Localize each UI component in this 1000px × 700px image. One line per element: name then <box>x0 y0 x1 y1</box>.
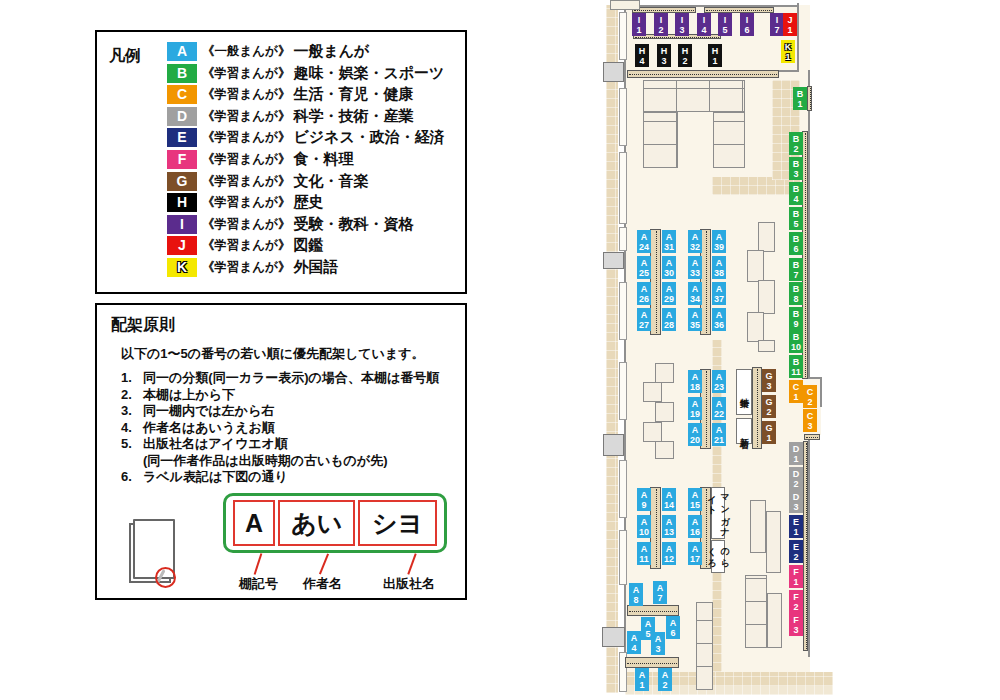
shelf-label-D3: D3 <box>789 490 803 513</box>
area-label-特集: 特集 <box>736 369 752 415</box>
spine-label-part-1: A <box>233 500 275 546</box>
legend-category: 生活・育児・健康 <box>293 85 413 104</box>
category-chip-E: E <box>167 128 197 147</box>
shelf-label-C1: C1 <box>789 380 803 403</box>
legend-item-B: B《学習まんが》趣味・娯楽・スポーツ <box>167 64 445 83</box>
shelf-label-A22: A22 <box>712 397 726 420</box>
shelf-label-A15: A15 <box>688 488 702 511</box>
shelf-label-J1: J1 <box>783 13 797 36</box>
area-label-のらくろ: のらくろ <box>711 540 725 573</box>
shelf-label-E1: E1 <box>789 515 803 538</box>
legend-item-H: H《学習まんが》歴史 <box>167 193 445 212</box>
walkway-bottom <box>625 672 833 686</box>
shelf-label-E2: E2 <box>789 540 803 563</box>
legend-item-A: A《一般まんが》一般まんが <box>167 42 445 61</box>
shelf-label-A39: A39 <box>712 230 726 253</box>
shelf-block <box>758 340 775 352</box>
legend-title: 凡例 <box>109 42 167 280</box>
rule-text: 同一の分類(同一カラー表示)の場合、本棚は番号順 <box>143 370 439 387</box>
shelf-label-B7: B7 <box>789 258 803 281</box>
legend-category: 図鑑 <box>293 236 323 255</box>
principles-box: 配架原則 以下の1〜5の番号の若い順に優先配架しています。 1.同一の分類(同一… <box>95 303 467 600</box>
rule-number: 5. <box>121 436 143 469</box>
rule-text: 本棚は上から下 <box>143 387 235 404</box>
shelf-label-B3: B3 <box>789 157 803 180</box>
wall-bay-right <box>820 377 822 407</box>
rule-line: 同一の分類(同一カラー表示)の場合、本棚は番号順 <box>143 370 439 387</box>
legend-series: 《学習まんが》 <box>202 194 290 211</box>
rule-number: 2. <box>121 387 143 404</box>
wall-segment <box>619 460 627 518</box>
shelf-label-B4: B4 <box>789 182 803 205</box>
shelf-label-D1: D1 <box>789 442 803 465</box>
principles-intro: 以下の1〜5の番号の若い順に優先配架しています。 <box>121 345 455 363</box>
shelf-block <box>610 0 640 10</box>
shelf-strip <box>752 367 762 449</box>
legend-item-J: J《学習まんが》図鑑 <box>167 236 445 255</box>
legend-category: 食・料理 <box>293 150 353 169</box>
shelf-label-C2: C2 <box>803 385 817 408</box>
shelf-label-A36: A36 <box>712 308 726 331</box>
legend-series: 《学習まんが》 <box>202 108 290 125</box>
shelf-label-A16: A16 <box>688 515 702 538</box>
shelf-block <box>713 112 745 168</box>
shelf-label-A35: A35 <box>688 308 702 331</box>
area-label-マンガナイト: マンガナイト <box>711 487 725 539</box>
wall-topright <box>797 3 799 71</box>
rule-number: 6. <box>121 469 143 486</box>
shelf-label-H4: H4 <box>635 44 649 67</box>
table-block <box>643 382 662 402</box>
shelf-label-I1: I1 <box>632 13 646 36</box>
shelf-label-A37: A37 <box>712 282 726 305</box>
rule-text: 出版社名はアイウエオ順(同一作者作品は出版時期の古いものが先) <box>143 436 388 469</box>
shelf-block <box>758 280 775 314</box>
spine-caption-3: 出版社名 <box>383 575 435 593</box>
shelf-label-A30: A30 <box>662 256 676 279</box>
legend-series: 《学習まんが》 <box>202 151 290 168</box>
category-chip-I: I <box>167 215 197 234</box>
shelf-label-D2: D2 <box>789 467 803 490</box>
principles-title: 配架原則 <box>111 315 455 336</box>
wall-segment <box>619 152 627 224</box>
rule-line: 出版社名はアイウエオ順 <box>143 436 388 453</box>
walkway-left <box>606 5 618 693</box>
shelf-label-G2: G2 <box>762 395 776 418</box>
legend-category: 科学・技術・産業 <box>293 107 413 126</box>
legend-series: 《学習まんが》 <box>202 216 290 233</box>
legend-category: 文化・音楽 <box>293 172 368 191</box>
shelf-label-A13: A13 <box>662 515 676 538</box>
floor-map: I1I2I3I4I5I6I7J1K1H4H3H2H1B1B2B3B4B5B6B7… <box>600 0 840 700</box>
shelf-label-I5: I5 <box>718 13 732 36</box>
rule-number: 4. <box>121 420 143 437</box>
shelf-label-F1: F1 <box>789 565 803 588</box>
legend-series: 《一般まんが》 <box>202 43 290 60</box>
rule-text: ラベル表記は下図の通り <box>143 469 288 486</box>
category-chip-K: K <box>167 258 197 277</box>
shelf-strip <box>803 441 808 651</box>
rule-number: 1. <box>121 370 143 387</box>
shelf-label-F2: F2 <box>789 590 803 613</box>
legend-series: 《学習まんが》 <box>202 259 290 276</box>
rule-line: 本棚は上から下 <box>143 387 235 404</box>
shelf-label-A38: A38 <box>712 256 726 279</box>
legend-item-F: F《学習まんが》食・料理 <box>167 150 445 169</box>
shelf-label-A12: A12 <box>662 542 676 565</box>
door-tab <box>603 62 624 82</box>
door-tab <box>603 252 624 269</box>
shelf-label-G1: G1 <box>762 421 776 444</box>
shelf-strip <box>804 434 820 440</box>
shelf-label-I4: I4 <box>697 13 711 36</box>
legend-item-C: C《学習まんが》生活・育児・健康 <box>167 85 445 104</box>
shelf-label-B9: B9 <box>789 307 803 330</box>
shelf-block <box>745 575 767 648</box>
category-chip-D: D <box>167 107 197 126</box>
category-chip-A: A <box>167 42 197 61</box>
leader-line-3 <box>407 553 416 574</box>
label-position-circle <box>155 567 176 588</box>
legend-category: ビジネス・政治・経済 <box>293 128 444 147</box>
legend-item-G: G《学習まんが》文化・音楽 <box>167 172 445 191</box>
rule-1: 1.同一の分類(同一カラー表示)の場合、本棚は番号順 <box>121 370 455 387</box>
shelf-label-A3: A3 <box>651 632 665 655</box>
shelf-label-I7: I7 <box>770 13 784 36</box>
legend-item-E: E《学習まんが》ビジネス・政治・経済 <box>167 128 445 147</box>
leader-line-1 <box>254 553 263 575</box>
shelf-strip <box>627 70 779 78</box>
category-chip-C: C <box>167 85 197 104</box>
spine-label-part-3: シヨ <box>358 500 437 546</box>
shelf-strip <box>650 229 661 335</box>
shelf-label-A31: A31 <box>662 230 676 253</box>
area-label-新着: 新着 <box>736 418 752 444</box>
wall-right-upper <box>808 70 810 378</box>
table-block <box>655 363 674 383</box>
shelf-label-C3: C3 <box>803 409 817 432</box>
category-chip-B: B <box>167 64 197 83</box>
shelf-label-B5: B5 <box>789 207 803 230</box>
shelf-label-A8: A8 <box>629 583 643 606</box>
shelf-label-A17: A17 <box>688 542 702 565</box>
table-block <box>655 402 674 422</box>
shelf-label-A7: A7 <box>653 581 667 604</box>
legend-category: 歴史 <box>293 193 323 212</box>
rule-3: 3.同一棚内では左から右 <box>121 403 455 420</box>
shelf-label-A1: A1 <box>635 668 649 691</box>
door-tab <box>603 434 624 456</box>
shelf-label-A32: A32 <box>688 230 702 253</box>
rule-line: 同一棚内では左から右 <box>143 403 274 420</box>
category-chip-H: H <box>167 193 197 212</box>
shelf-label-A6: A6 <box>666 616 680 639</box>
manga-floor-guide: 凡例 A《一般まんが》一般まんがB《学習まんが》趣味・娯楽・スポーツC《学習まん… <box>0 0 1000 700</box>
legend-category: 外国語 <box>293 258 338 277</box>
spine-label-part-2: あい <box>278 500 355 546</box>
shelf-strip <box>625 657 679 668</box>
wall-segment <box>619 88 627 146</box>
shelf-strip <box>650 487 661 569</box>
label-diagram: Aあいシヨ 棚記号作者名出版社名 <box>111 491 451 596</box>
legend-category: 受験・教科・資格 <box>293 215 413 234</box>
category-chip-F: F <box>167 150 197 169</box>
wall-segment <box>619 362 627 420</box>
shelf-label-A10: A10 <box>637 515 651 538</box>
shelf-label-I2: I2 <box>654 13 668 36</box>
legend-category: 一般まんが <box>293 42 369 61</box>
legend-series: 《学習まんが》 <box>202 65 290 82</box>
rule-text: 同一棚内では左から右 <box>143 403 274 420</box>
table-block <box>655 441 674 459</box>
shelf-strip <box>807 86 812 111</box>
shelf-block <box>747 250 764 282</box>
shelf-strip <box>627 605 679 616</box>
legend-series: 《学習まんが》 <box>202 173 290 190</box>
shelf-label-B10: B10 <box>789 330 803 353</box>
wall-right-lower <box>808 435 810 657</box>
shelf-label-A33: A33 <box>688 256 702 279</box>
legend-item-D: D《学習まんが》科学・技術・産業 <box>167 107 445 126</box>
shelf-label-I6: I6 <box>740 13 754 36</box>
shelf-label-K1: K1 <box>781 40 795 63</box>
legend-category: 趣味・娯楽・スポーツ <box>293 64 444 83</box>
rule-line: ラベル表記は下図の通り <box>143 469 288 486</box>
shelf-label-A11: A11 <box>637 542 651 565</box>
rule-6: 6.ラベル表記は下図の通り <box>121 469 455 486</box>
rule-text: 作者名はあいうえお順 <box>143 420 275 437</box>
shelf-label-B11: B11 <box>789 355 803 378</box>
shelf-label-A28: A28 <box>662 308 676 331</box>
shelf-label-B6: B6 <box>789 232 803 255</box>
shelf-label-F3: F3 <box>789 613 803 636</box>
shelf-label-A23: A23 <box>712 370 726 393</box>
category-chip-G: G <box>167 172 197 191</box>
shelf-block <box>747 312 764 342</box>
shelf-label-A20: A20 <box>688 423 702 446</box>
legend-item-K: K《学習まんが》外国語 <box>167 258 445 277</box>
shelf-label-B8: B8 <box>789 282 803 305</box>
spine-caption-2: 作者名 <box>303 575 342 593</box>
table-block <box>643 422 662 442</box>
wall-segment <box>619 282 627 340</box>
shelf-label-A14: A14 <box>662 488 676 511</box>
spine-caption-1: 棚記号 <box>239 575 278 593</box>
shelf-label-B1: B1 <box>793 87 807 110</box>
shelf-label-H3: H3 <box>657 44 671 67</box>
shelf-label-A18: A18 <box>688 370 702 393</box>
door-tab <box>602 627 625 647</box>
shelf-block <box>696 602 713 690</box>
shelf-label-A9: A9 <box>637 488 651 511</box>
walkway-bottom-2 <box>625 686 833 695</box>
shelf-block <box>766 511 781 573</box>
rule-line: (同一作者作品は出版時期の古いものが先) <box>143 453 388 470</box>
wall-segment <box>619 12 627 60</box>
shelf-label-G3: G3 <box>762 369 776 392</box>
legend-series: 《学習まんが》 <box>202 237 290 254</box>
wall-segment <box>619 530 627 585</box>
shelf-block <box>758 222 775 252</box>
shelf-block <box>643 112 678 168</box>
shelf-label-A26: A26 <box>637 282 651 305</box>
shelf-strip <box>704 7 774 13</box>
shelf-label-H1: H1 <box>708 44 722 67</box>
category-chip-J: J <box>167 236 197 255</box>
book-icon <box>129 519 173 579</box>
legend-series: 《学習まんが》 <box>202 129 290 146</box>
shelf-label-A27: A27 <box>637 308 651 331</box>
shelf-label-A29: A29 <box>662 282 676 305</box>
rule-number: 3. <box>121 403 143 420</box>
principles-rules: 1.同一の分類(同一カラー表示)の場合、本棚は番号順2.本棚は上から下3.同一棚… <box>111 370 455 486</box>
shelf-label-A24: A24 <box>637 230 651 253</box>
shelf-label-A4: A4 <box>627 631 641 654</box>
shelf-label-A25: A25 <box>637 256 651 279</box>
legend-rows: A《一般まんが》一般まんがB《学習まんが》趣味・娯楽・スポーツC《学習まんが》生… <box>167 42 445 280</box>
shelf-label-H2: H2 <box>678 44 692 67</box>
shelf-label-I3: I3 <box>675 13 689 36</box>
shelf-label-A19: A19 <box>688 397 702 420</box>
rule-4: 4.作者名はあいうえお順 <box>121 420 455 437</box>
shelf-block <box>750 500 766 553</box>
shelf-label-A21: A21 <box>712 423 726 446</box>
shelf-label-A2: A2 <box>658 668 672 691</box>
shelf-label-B2: B2 <box>789 132 803 155</box>
legend-series: 《学習まんが》 <box>202 86 290 103</box>
legend-box: 凡例 A《一般まんが》一般まんがB《学習まんが》趣味・娯楽・スポーツC《学習まん… <box>95 30 467 294</box>
leader-line-2 <box>319 553 329 574</box>
shelf-block <box>767 593 782 648</box>
rule-5: 5.出版社名はアイウエオ順(同一作者作品は出版時期の古いものが先) <box>121 436 455 469</box>
shelf-block <box>643 80 745 112</box>
legend-item-I: I《学習まんが》受験・教科・資格 <box>167 215 445 234</box>
spine-label-frame: Aあいシヨ <box>223 493 447 553</box>
rule-line: 作者名はあいうえお順 <box>143 420 275 437</box>
rule-2: 2.本棚は上から下 <box>121 387 455 404</box>
wall-segment <box>619 227 627 251</box>
shelf-label-A34: A34 <box>688 282 702 305</box>
